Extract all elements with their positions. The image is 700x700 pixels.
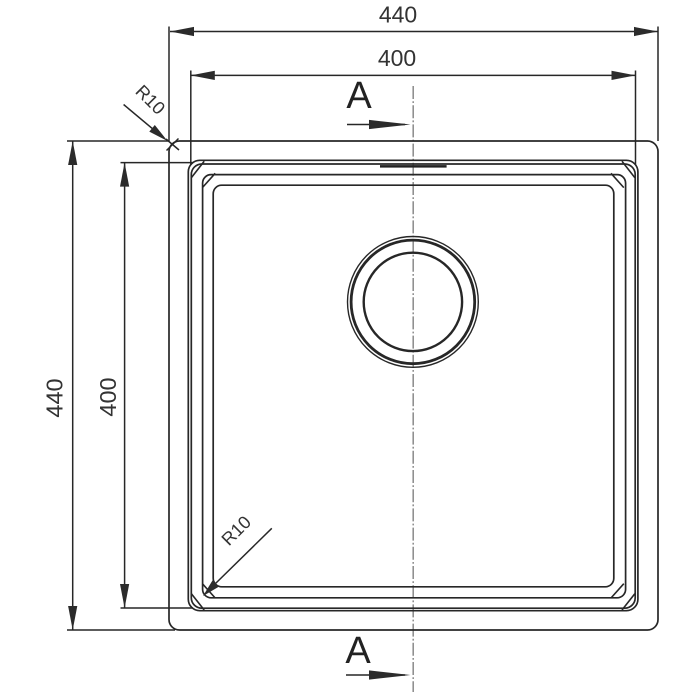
svg-text:400: 400	[95, 377, 121, 416]
svg-text:400: 400	[378, 45, 416, 71]
svg-text:A: A	[345, 630, 371, 672]
svg-text:R10: R10	[131, 81, 168, 118]
svg-text:440: 440	[379, 2, 417, 28]
svg-text:440: 440	[41, 378, 67, 417]
svg-text:R10: R10	[218, 512, 255, 549]
svg-text:A: A	[346, 75, 372, 117]
